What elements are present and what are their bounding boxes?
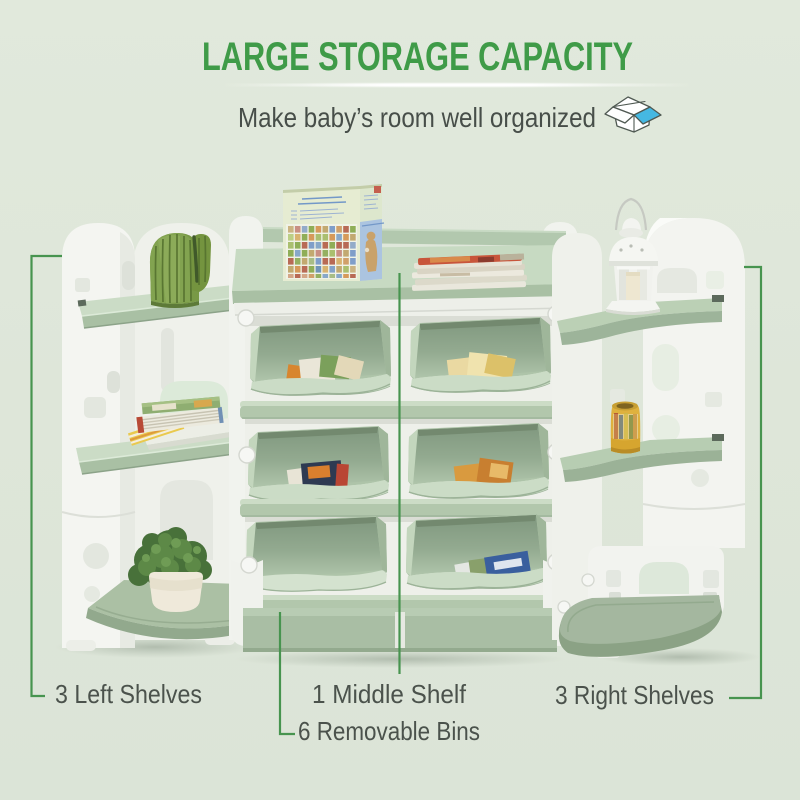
svg-text:3 Right Shelves: 3 Right Shelves xyxy=(555,680,714,710)
svg-text:LARGE STORAGE CAPACITY: LARGE STORAGE CAPACITY xyxy=(202,35,633,79)
svg-text:6 Removable Bins: 6 Removable Bins xyxy=(298,716,480,746)
svg-text:3 Left Shelves: 3 Left Shelves xyxy=(55,679,202,709)
svg-text:Make baby’s room well organize: Make baby’s room well organized xyxy=(238,102,596,133)
svg-text:1 Middle Shelf: 1 Middle Shelf xyxy=(312,679,467,709)
